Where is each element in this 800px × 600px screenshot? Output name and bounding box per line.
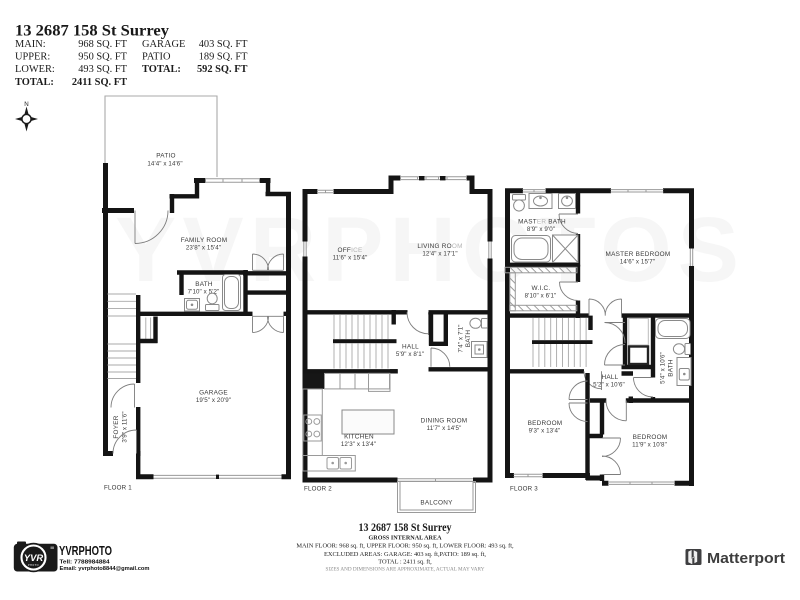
svg-text:MAIN FLOOR: 968 sq. ft, UPPER: MAIN FLOOR: 968 sq. ft, UPPER FLOOR: 950… bbox=[296, 543, 514, 550]
svg-text:DINING ROOM: DINING ROOM bbox=[421, 418, 468, 425]
svg-text:GROSS INTERNAL AREA: GROSS INTERNAL AREA bbox=[369, 535, 442, 542]
svg-text:TOTAL:: TOTAL: bbox=[15, 77, 54, 88]
svg-text:HALL: HALL bbox=[402, 344, 419, 351]
svg-text:FOYER: FOYER bbox=[113, 415, 120, 438]
svg-text:BATH: BATH bbox=[668, 359, 675, 377]
svg-text:950 SQ. FT: 950 SQ. FT bbox=[78, 52, 127, 63]
svg-text:14'6" x 15'7": 14'6" x 15'7" bbox=[620, 259, 655, 266]
svg-text:GARAGE: GARAGE bbox=[142, 39, 185, 50]
svg-text:493 SQ. FT: 493 SQ. FT bbox=[78, 64, 127, 75]
svg-text:8'9" x 9'0": 8'9" x 9'0" bbox=[527, 226, 555, 233]
svg-text:YVR: YVR bbox=[24, 552, 44, 563]
svg-text:7'4" x 7'1": 7'4" x 7'1" bbox=[458, 324, 465, 352]
svg-text:PATIO: PATIO bbox=[156, 153, 175, 160]
svg-text:FLOOR 3: FLOOR 3 bbox=[510, 486, 538, 493]
svg-text:GARAGE: GARAGE bbox=[199, 390, 228, 397]
svg-text:MASTER BEDROOM: MASTER BEDROOM bbox=[606, 251, 671, 258]
svg-text:MASTER BATH: MASTER BATH bbox=[518, 219, 566, 226]
svg-text:13 2687 158 St Surrey: 13 2687 158 St Surrey bbox=[15, 23, 169, 40]
svg-text:2411 SQ. FT: 2411 SQ. FT bbox=[72, 77, 127, 88]
svg-text:9'3" x 13'4": 9'3" x 13'4" bbox=[529, 428, 561, 435]
svg-text:MAIN:: MAIN: bbox=[15, 39, 46, 50]
svg-text:PATIO: PATIO bbox=[142, 52, 171, 63]
svg-text:BEDROOM: BEDROOM bbox=[528, 420, 563, 427]
svg-text:11'6" x 15'4": 11'6" x 15'4" bbox=[333, 255, 368, 262]
svg-text:FLOOR 2: FLOOR 2 bbox=[304, 486, 332, 493]
svg-text:EXCLUDED AREAS: GARAGE: 403 sq: EXCLUDED AREAS: GARAGE: 403 sq. ft,PATIO… bbox=[324, 551, 486, 558]
svg-text:KITCHEN: KITCHEN bbox=[344, 434, 374, 441]
svg-text:5'2" x 10'6": 5'2" x 10'6" bbox=[593, 382, 625, 389]
svg-text:11'9" x 10'8": 11'9" x 10'8" bbox=[632, 442, 667, 449]
svg-text:TOTAL:: TOTAL: bbox=[142, 64, 181, 75]
svg-text:5'9" x 8'1": 5'9" x 8'1" bbox=[396, 351, 424, 358]
svg-text:592 SQ. FT: 592 SQ. FT bbox=[197, 64, 248, 75]
svg-text:UPPER:: UPPER: bbox=[15, 52, 50, 63]
svg-text:PHOTO: PHOTO bbox=[28, 564, 39, 567]
svg-text:LIVING ROOM: LIVING ROOM bbox=[417, 243, 462, 250]
svg-text:BATH: BATH bbox=[465, 330, 472, 348]
svg-text:FLOOR 1: FLOOR 1 bbox=[104, 485, 132, 492]
svg-text:403 SQ. FT: 403 SQ. FT bbox=[199, 39, 248, 50]
svg-text:W.I.C.: W.I.C. bbox=[532, 285, 551, 292]
svg-text:BALCONY: BALCONY bbox=[420, 500, 453, 507]
svg-text:19'5" x 20'9": 19'5" x 20'9" bbox=[196, 397, 231, 404]
svg-text:8'10" x 6'1": 8'10" x 6'1" bbox=[525, 293, 557, 300]
svg-text:TOTAL : 2411 sq. ft,: TOTAL : 2411 sq. ft, bbox=[378, 559, 432, 566]
svg-text:968 SQ. FT: 968 SQ. FT bbox=[78, 39, 127, 50]
svg-text:SIZES AND DIMENSIONS ARE APPRO: SIZES AND DIMENSIONS ARE APPROXIMATE, AC… bbox=[326, 567, 485, 573]
svg-text:13 2687 158 St Surrey: 13 2687 158 St Surrey bbox=[359, 520, 452, 534]
svg-text:Matterport: Matterport bbox=[707, 550, 785, 567]
svg-text:189 SQ. FT: 189 SQ. FT bbox=[199, 52, 248, 63]
svg-text:OFFICE: OFFICE bbox=[338, 247, 363, 254]
svg-text:11'7" x 14'5": 11'7" x 14'5" bbox=[427, 425, 462, 432]
svg-text:FAMILY ROOM: FAMILY ROOM bbox=[181, 237, 228, 244]
svg-text:LOWER:: LOWER: bbox=[15, 64, 55, 75]
svg-text:HALL: HALL bbox=[602, 374, 619, 381]
svg-text:Tell: 7788984884: Tell: 7788984884 bbox=[60, 559, 111, 565]
svg-text:5'4" x 10'6": 5'4" x 10'6" bbox=[660, 352, 667, 384]
svg-text:12'3" x 13'4": 12'3" x 13'4" bbox=[341, 441, 376, 448]
svg-text:3'9" x 11'6": 3'9" x 11'6" bbox=[122, 411, 129, 442]
svg-text:YVRPHOTO: YVRPHOTO bbox=[59, 543, 112, 558]
svg-text:BATH: BATH bbox=[195, 281, 213, 288]
svg-text:BEDROOM: BEDROOM bbox=[633, 434, 668, 441]
svg-text:23'8" x 15'4": 23'8" x 15'4" bbox=[186, 245, 221, 252]
svg-text:12'4" x 17'1": 12'4" x 17'1" bbox=[422, 251, 457, 258]
svg-text:14'4" x 14'6": 14'4" x 14'6" bbox=[147, 161, 182, 168]
svg-text:Email: yvrphoto8844@gmail.com: Email: yvrphoto8844@gmail.com bbox=[60, 566, 150, 572]
